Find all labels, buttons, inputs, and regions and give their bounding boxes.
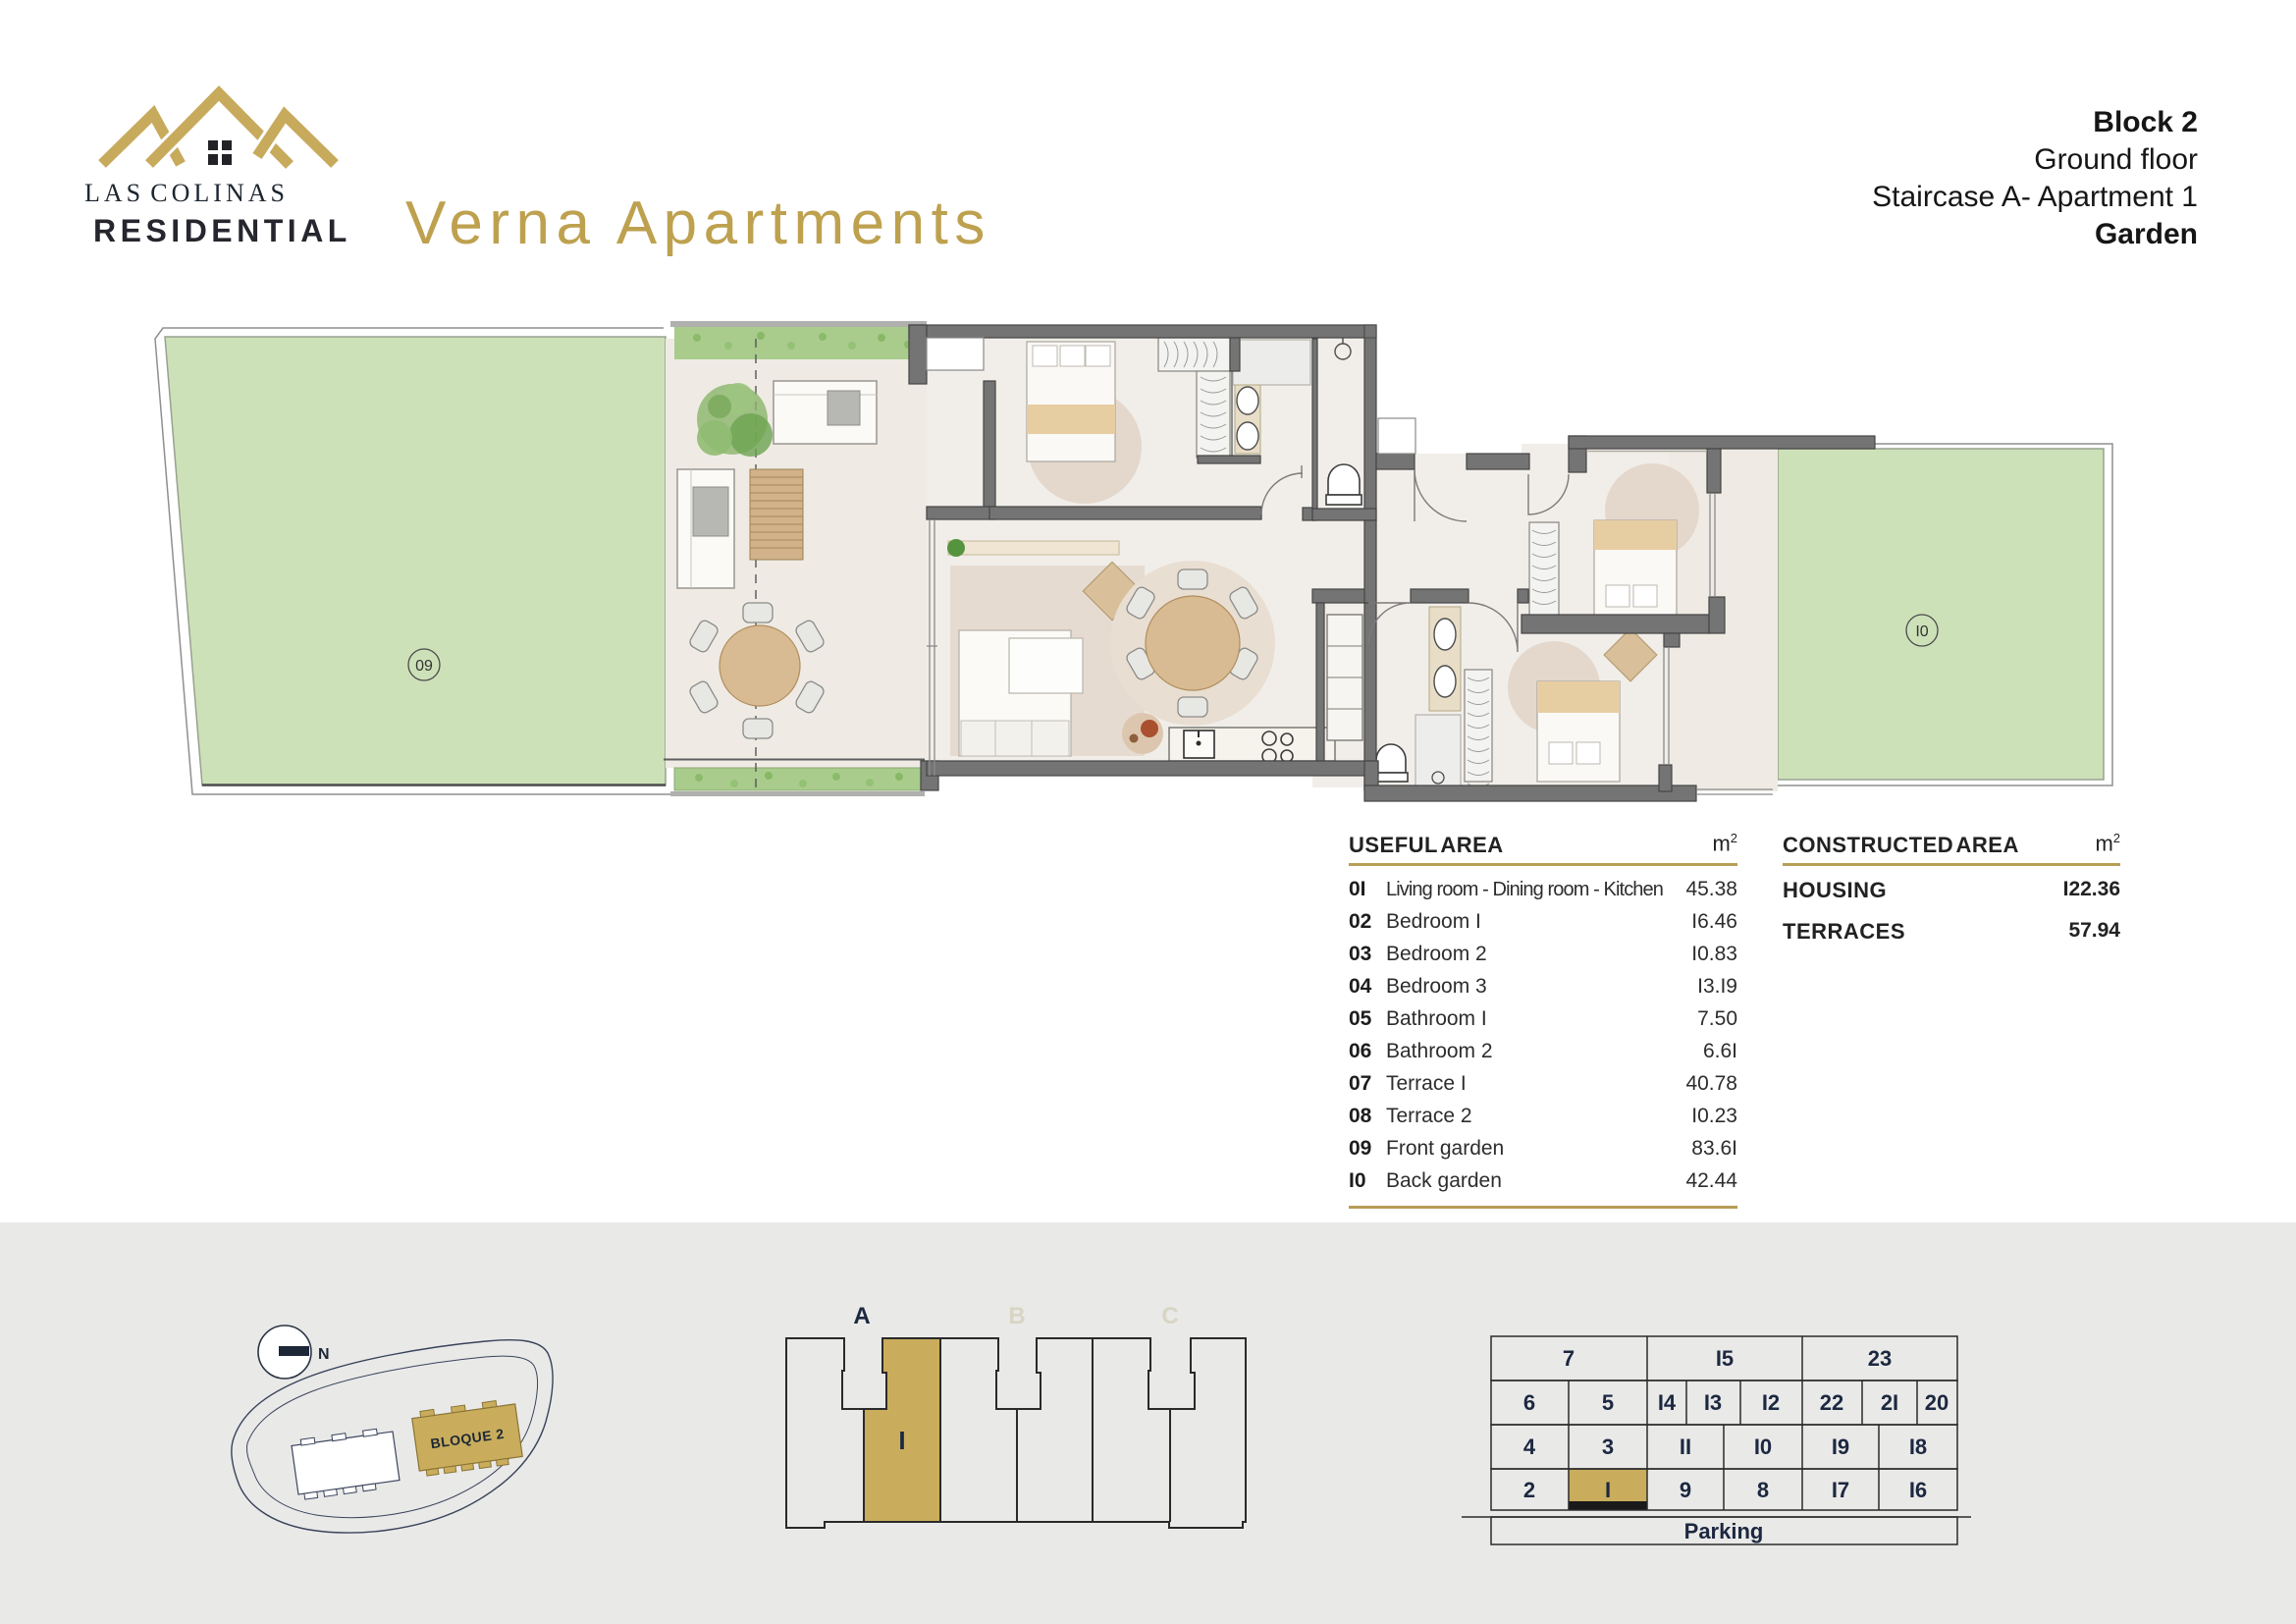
svg-text:I5: I5	[1716, 1346, 1734, 1371]
svg-text:7: 7	[1563, 1346, 1575, 1371]
svg-text:I9: I9	[1832, 1435, 1849, 1459]
svg-text:3: 3	[1602, 1435, 1614, 1459]
svg-text:22: 22	[1820, 1390, 1843, 1415]
svg-text:N: N	[318, 1346, 330, 1363]
svg-text:I8: I8	[1909, 1435, 1927, 1459]
svg-text:6: 6	[1523, 1390, 1535, 1415]
svg-text:I6: I6	[1909, 1478, 1927, 1502]
svg-text:I0: I0	[1915, 623, 1928, 640]
svg-text:I7: I7	[1832, 1478, 1849, 1502]
svg-text:B: B	[1008, 1303, 1025, 1329]
svg-text:9: 9	[1680, 1478, 1691, 1502]
svg-text:I: I	[1605, 1478, 1611, 1502]
svg-text:I0: I0	[1754, 1435, 1772, 1459]
svg-text:C: C	[1161, 1303, 1178, 1329]
svg-text:4: 4	[1523, 1435, 1536, 1459]
svg-text:Parking: Parking	[1684, 1519, 1764, 1543]
svg-text:A: A	[853, 1303, 870, 1329]
svg-text:I: I	[898, 1426, 905, 1455]
svg-text:2I: 2I	[1881, 1390, 1898, 1415]
svg-text:5: 5	[1602, 1390, 1614, 1415]
svg-text:I2: I2	[1762, 1390, 1780, 1415]
svg-text:I3: I3	[1704, 1390, 1722, 1415]
svg-text:2: 2	[1523, 1478, 1535, 1502]
svg-text:I4: I4	[1658, 1390, 1677, 1415]
svg-text:23: 23	[1868, 1346, 1892, 1371]
svg-text:8: 8	[1757, 1478, 1769, 1502]
svg-text:II: II	[1680, 1435, 1691, 1459]
svg-text:09: 09	[415, 658, 433, 675]
svg-text:20: 20	[1925, 1390, 1949, 1415]
